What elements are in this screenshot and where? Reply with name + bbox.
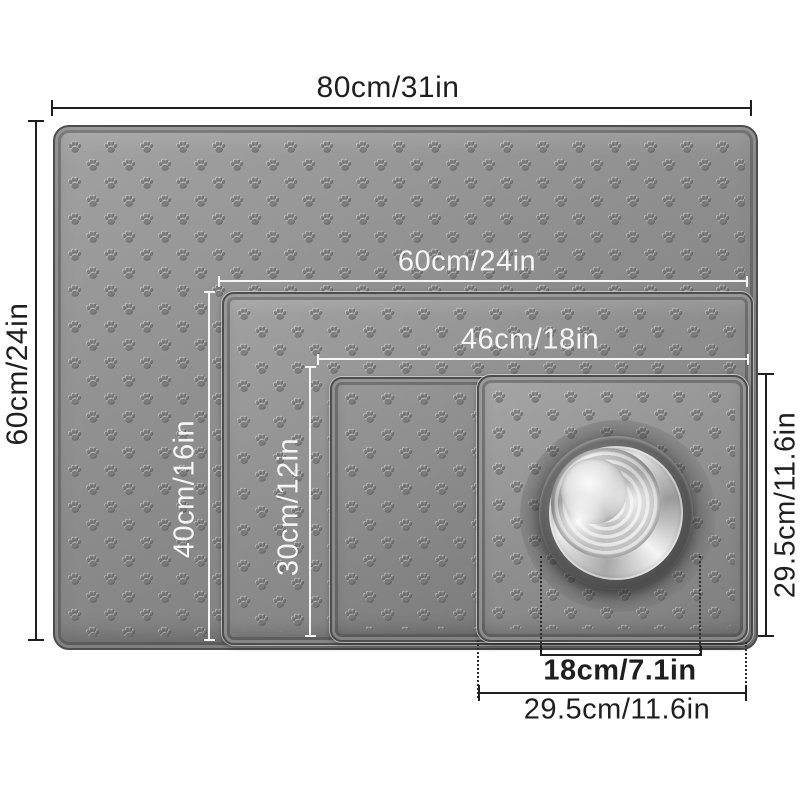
dim-ext-bowl-left xyxy=(540,556,542,655)
dim-line-overall-height xyxy=(35,120,37,641)
bowl-highlight xyxy=(539,436,693,590)
dim-label-mat2-height: 40cm/16in xyxy=(169,420,202,558)
dim-line-mat4-height xyxy=(765,373,767,637)
pet-bowl xyxy=(539,436,693,590)
dim-line-mat2-height xyxy=(208,291,210,641)
dim-label-overall-height: 60cm/24in xyxy=(1,303,35,446)
dim-label-mat3-height: 30cm/12in xyxy=(273,438,306,576)
dim-label-mat4-height: 29.5cm/11.6in xyxy=(770,412,800,599)
dim-label-mat2-width: 60cm/24in xyxy=(398,246,536,279)
product-dimension-diagram: 80cm/31in 60cm/24in 60cm/24in 40cm/16in … xyxy=(0,0,800,800)
dim-label-mat3-width: 46cm/18in xyxy=(461,324,599,357)
dim-label-bowl-diameter: 18cm/7.1in xyxy=(543,655,696,688)
dim-label-mat4-width: 29.5cm/11.6in xyxy=(524,694,711,727)
dim-line-overall-width xyxy=(51,107,752,109)
dim-label-overall-width: 80cm/31in xyxy=(317,71,460,105)
dim-line-mat3-width xyxy=(317,358,749,360)
dim-line-mat2-width xyxy=(218,280,748,282)
dim-line-mat3-height xyxy=(309,366,311,637)
dim-ext-bowl-right xyxy=(699,556,701,655)
